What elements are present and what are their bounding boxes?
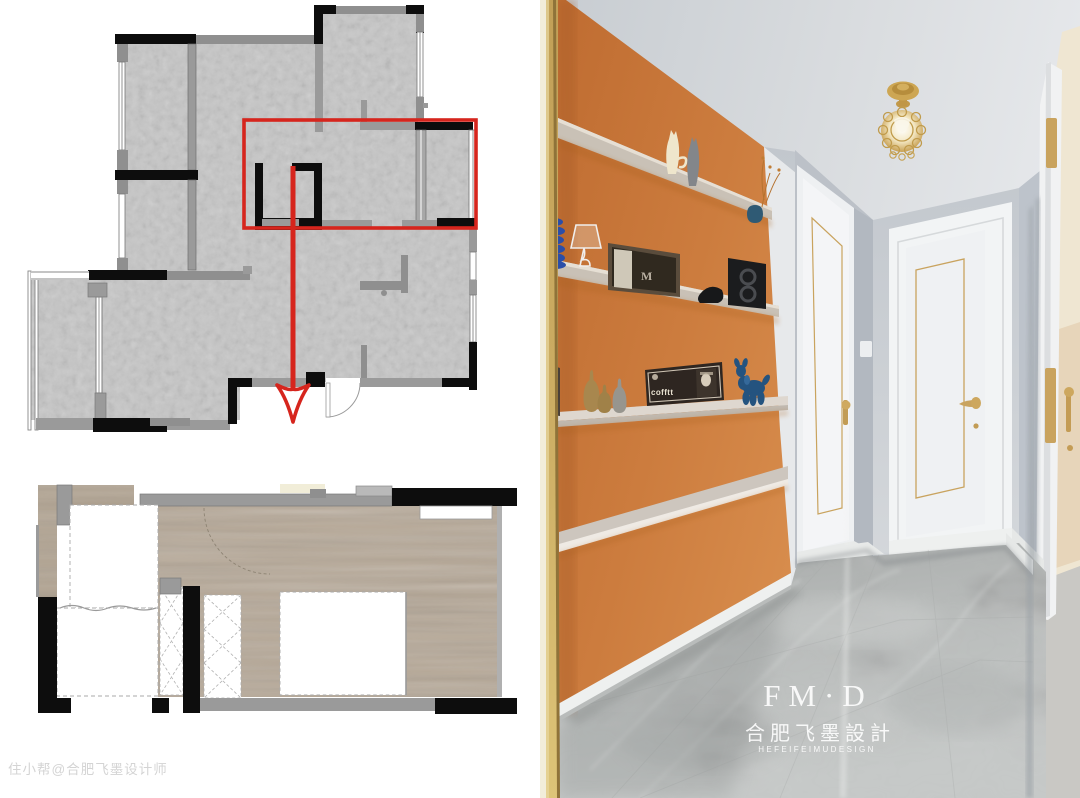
svg-text:cofftt: cofftt: [651, 388, 673, 397]
svg-text:FM·D: FM·D: [763, 678, 873, 713]
svg-text:M: M: [641, 269, 652, 283]
svg-text:HEFEIFEIMUDESIGN: HEFEIFEIMUDESIGN: [758, 745, 876, 754]
svg-text:合肥飞墨設計: 合肥飞墨設計: [745, 722, 895, 745]
svg-text:住小帮@合肥飞墨设计师: 住小帮@合肥飞墨设计师: [8, 762, 168, 777]
